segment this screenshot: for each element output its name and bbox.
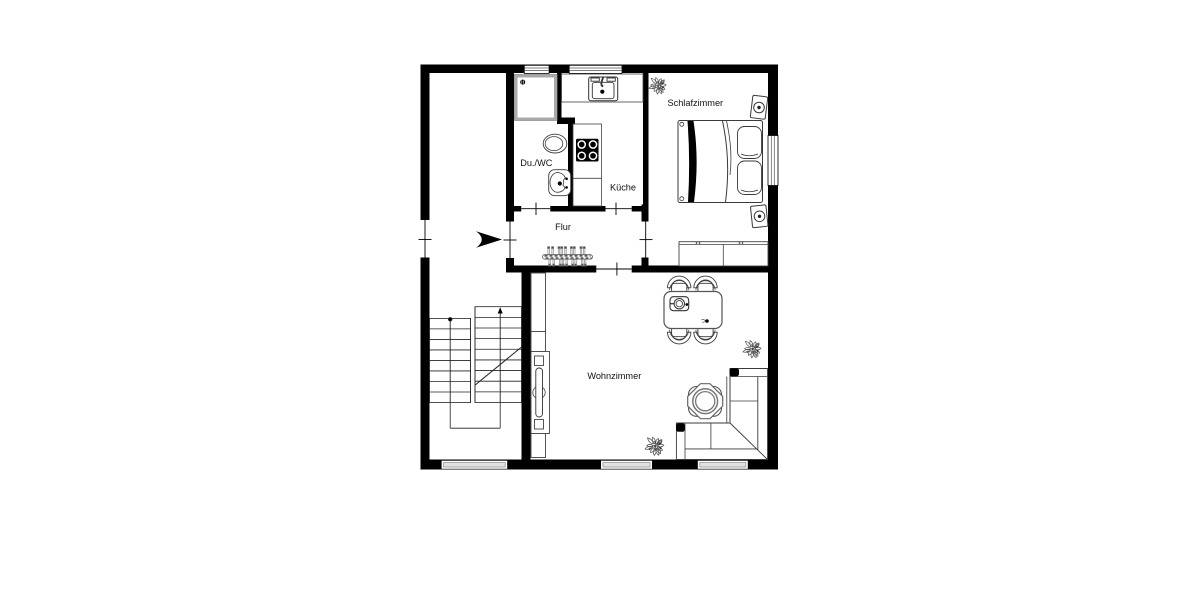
svg-text:Du./WC: Du./WC xyxy=(520,158,553,168)
svg-text:Wohnzimmer: Wohnzimmer xyxy=(587,371,641,381)
svg-text:Schlafzimmer: Schlafzimmer xyxy=(667,98,723,108)
svg-text:Küche: Küche xyxy=(610,182,636,192)
svg-text:Flur: Flur xyxy=(555,222,571,232)
